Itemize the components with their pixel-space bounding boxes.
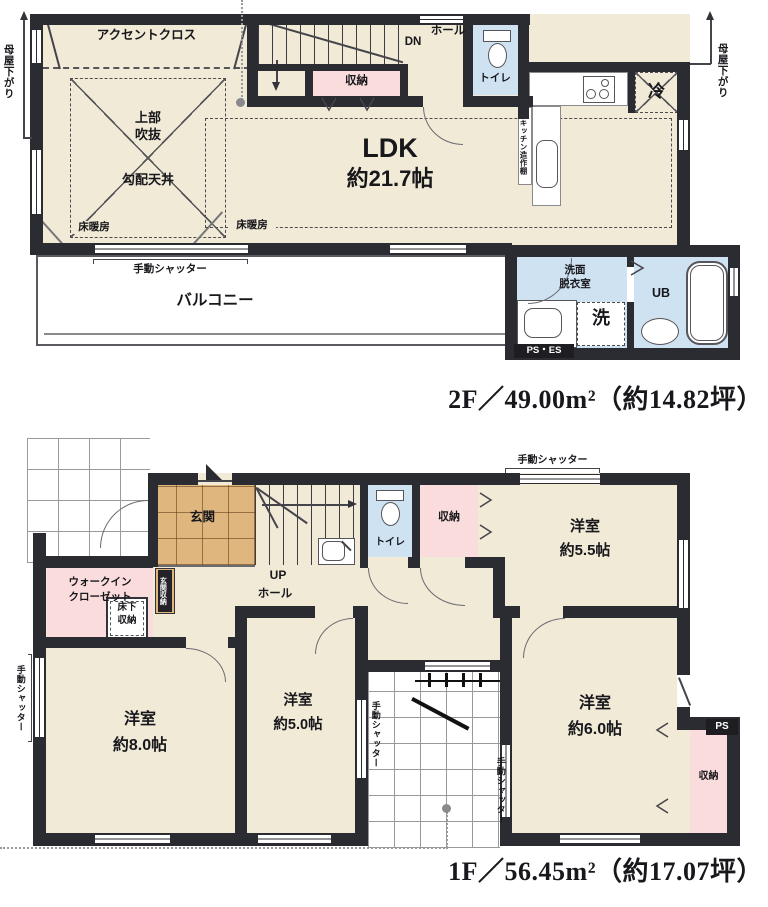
toilet-label: トイレ	[366, 537, 414, 549]
entrance-door-icon	[206, 464, 222, 480]
laundry-label: 洗	[577, 308, 625, 330]
window	[356, 700, 367, 778]
stair-arrow-icon	[348, 500, 357, 508]
window	[95, 244, 248, 254]
manual-shutter-label: 手動シャッター	[500, 455, 605, 467]
balcony-inner-line	[44, 333, 508, 335]
section-line	[241, 0, 243, 100]
storage-label: 収納	[313, 75, 400, 89]
ps-label: PS	[706, 719, 738, 735]
entrance-door-line	[198, 480, 232, 482]
stove-burner-icon	[599, 89, 609, 99]
void-label-1: 上部	[120, 110, 176, 126]
entrance-step-line	[158, 565, 255, 567]
section-line	[0, 847, 448, 849]
ldk-size-label: 約21.7帖	[280, 166, 500, 192]
entrance-storage-label: 玄関収納	[158, 572, 166, 610]
wall	[360, 485, 368, 568]
wall	[500, 606, 520, 618]
wall	[353, 606, 368, 618]
eaves-line	[23, 20, 25, 138]
garage-tiles	[368, 672, 500, 848]
toilet-bowl-icon	[381, 502, 400, 526]
floor-heating-label: 床暖房	[72, 221, 116, 234]
bath-stool-icon	[641, 318, 679, 345]
window	[420, 15, 463, 24]
fold-door-icon	[656, 722, 670, 738]
eaves-note-left: 母屋下がり	[2, 16, 15, 126]
wall	[410, 96, 423, 107]
fold-door-icon	[656, 798, 670, 814]
window	[31, 30, 42, 63]
window	[34, 658, 45, 737]
entrance-label: 玄関	[150, 510, 255, 525]
washroom-label-1: 洗面	[530, 264, 620, 277]
wall	[628, 72, 635, 113]
wall	[627, 302, 634, 348]
eaves-line	[23, 137, 32, 139]
wall	[505, 245, 517, 360]
wall	[235, 606, 247, 846]
floor-heating-label: 床暖房	[228, 219, 276, 232]
window	[678, 120, 689, 150]
toilet-tank-icon	[376, 490, 404, 501]
wall	[677, 62, 690, 255]
fold-door-icon	[479, 524, 493, 540]
stair-arrow-icon	[272, 82, 280, 91]
wall	[400, 71, 408, 96]
eaves-line	[710, 20, 712, 64]
hall-label: ホール	[424, 25, 472, 39]
shutter-bracket	[505, 468, 600, 473]
window	[425, 661, 490, 671]
underfloor-label-1: 床下	[106, 602, 148, 613]
kitchen-sink-icon	[536, 140, 558, 188]
floor2-area-label: 2F／49.00m²（約14.82坪）	[360, 379, 763, 416]
wall	[360, 557, 368, 568]
fold-door-icon	[479, 492, 493, 508]
arrow-up-icon	[706, 11, 714, 20]
wall	[240, 606, 315, 618]
wic-label-1: ウォークイン	[47, 576, 153, 589]
section-line	[446, 812, 448, 848]
wall	[408, 557, 420, 568]
wall	[463, 96, 533, 107]
floor1-area-label: 1F／56.45m²（約17.07坪）	[360, 851, 763, 888]
window	[678, 540, 689, 608]
eaves-line	[690, 63, 711, 65]
manual-shutter-label: 手動シャッター	[15, 652, 26, 744]
washbasin-bowl-icon	[322, 541, 345, 561]
room80-size-label: 約8.0帖	[58, 736, 222, 755]
wall	[33, 556, 153, 568]
gate-bar	[428, 673, 431, 687]
gate-bar	[479, 673, 482, 687]
wall	[728, 245, 740, 360]
toilet-tank-icon	[483, 30, 511, 42]
room55-label: 洋室	[528, 518, 642, 536]
stair-arrow-line	[262, 504, 350, 506]
unit-bath-label: UB	[638, 286, 684, 301]
wall	[505, 245, 740, 257]
fridge-label: 冷	[635, 82, 678, 102]
window	[95, 834, 170, 844]
window	[31, 150, 42, 214]
arrow-up-icon	[20, 11, 28, 20]
stove-burner-icon	[586, 89, 596, 99]
storage2-label: 収納	[690, 771, 727, 783]
room80-label: 洋室	[60, 710, 220, 729]
room50-size-label: 約5.0帖	[248, 717, 348, 734]
storage-label: 収納	[420, 511, 478, 524]
window	[560, 834, 640, 844]
room60-size-label: 約6.0帖	[536, 720, 654, 739]
wall	[33, 637, 186, 648]
toilet-bowl-icon	[488, 43, 507, 68]
gate-bar	[462, 673, 465, 687]
vanity-basin-icon	[524, 308, 562, 338]
void-label-2: 吹抜	[120, 127, 176, 143]
manual-shutter-label: 手動シャッター	[95, 263, 245, 276]
wall	[465, 557, 505, 568]
wall	[305, 71, 313, 96]
manual-shutter-label: 手動シャッター	[495, 746, 506, 834]
entrance-floor	[150, 485, 255, 565]
wall	[258, 64, 408, 71]
stove-burner-icon	[601, 79, 609, 87]
fold-door-icon	[630, 260, 644, 276]
ldk-label: LDK	[280, 132, 500, 164]
underfloor-label-2: 収納	[106, 615, 148, 626]
accent-cloth-label: アクセントクロス	[43, 28, 250, 43]
section-dot	[236, 98, 245, 107]
section-dot	[442, 804, 451, 813]
wall	[727, 717, 740, 846]
shutter-bracket	[28, 654, 32, 742]
wall	[563, 606, 690, 618]
window	[258, 834, 331, 844]
wall	[232, 473, 520, 485]
up-label: UP	[260, 568, 296, 582]
washroom-label-2: 脱衣室	[530, 278, 620, 291]
room50-label: 洋室	[250, 693, 346, 710]
bathtub-inner-icon	[690, 265, 724, 341]
window	[390, 244, 466, 254]
eaves-note-right: 母屋下がり	[716, 14, 729, 126]
fold-door-icon	[359, 97, 375, 111]
fold-door-icon	[321, 97, 337, 111]
gate-bar	[445, 673, 448, 687]
toilet-label: トイレ	[471, 72, 519, 85]
wall	[529, 62, 690, 72]
kitchen-shelf-label: キッチン造作棚	[519, 112, 528, 182]
sloped-ceiling-label: 勾配天井	[108, 172, 188, 188]
window	[729, 268, 739, 296]
room55-size-label: 約5.5帖	[526, 542, 644, 560]
void-above-box	[70, 78, 226, 238]
manual-shutter-label: 手動シャッター	[370, 690, 381, 778]
hall-label: ホール	[244, 588, 306, 602]
window	[520, 474, 600, 484]
balcony-label: バルコニー	[160, 292, 270, 311]
ps-es-label: PS・ES	[514, 344, 574, 358]
room60-label: 洋室	[538, 694, 652, 713]
